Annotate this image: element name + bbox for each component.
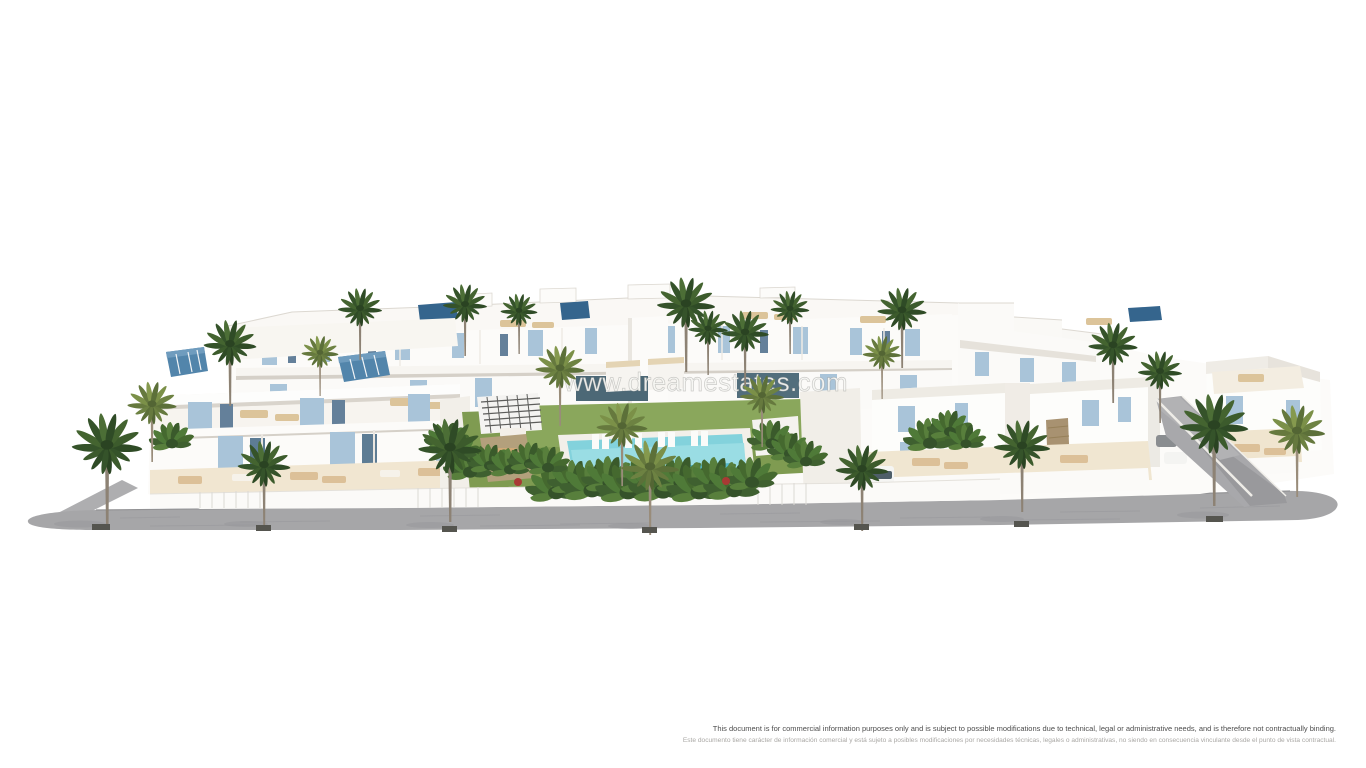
svg-text:www.dreamestates.com: www.dreamestates.com [563,367,848,397]
